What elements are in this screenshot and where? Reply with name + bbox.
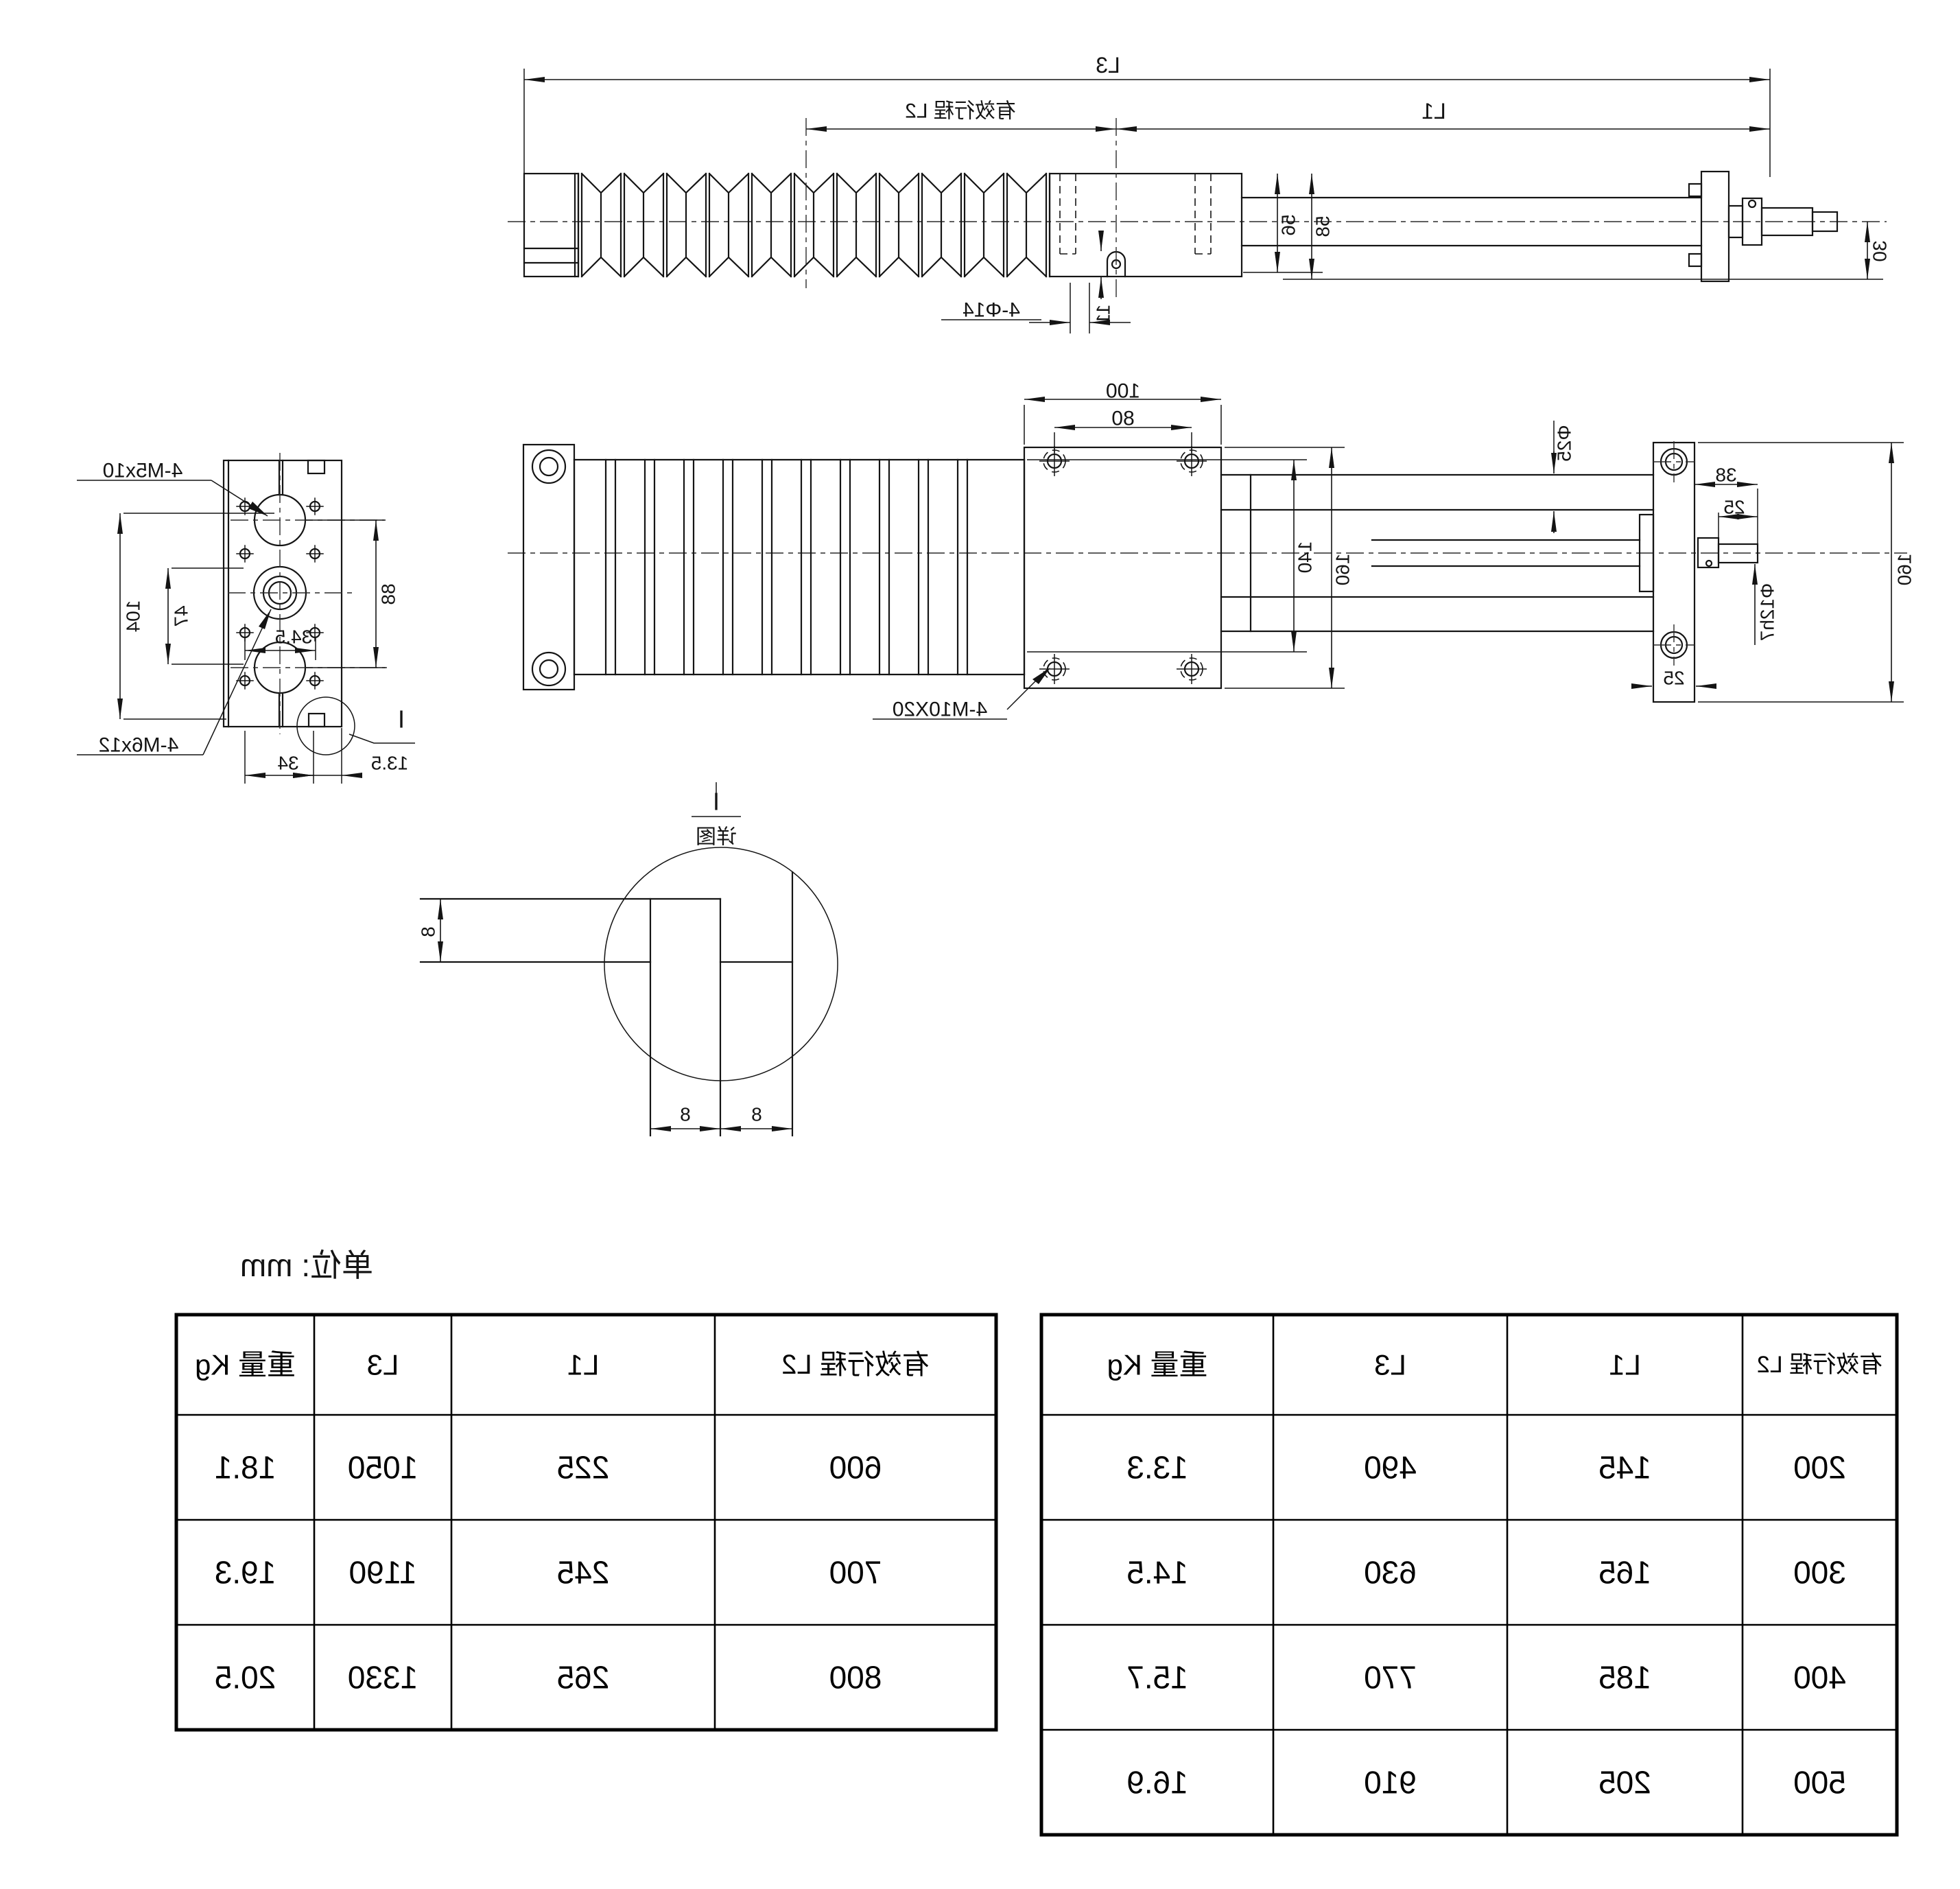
table-cell: 185 [1598, 1660, 1651, 1696]
dim-58: 58 [1312, 215, 1334, 237]
table-cell: 225 [557, 1450, 610, 1486]
keyway-top [308, 460, 324, 473]
dim-160-left: 160 [1332, 554, 1354, 586]
dim-34: 34 [277, 753, 298, 774]
table-cell: 200 [1793, 1450, 1846, 1486]
detail-title-I: I [713, 788, 720, 816]
bellows-end-cap [524, 174, 578, 277]
detail-view-I [421, 782, 838, 1136]
dim-4xM10X20: 4-M10X20 [893, 699, 987, 721]
middle-plan-view [508, 399, 1907, 719]
table-header: L1 [567, 1349, 600, 1381]
dim-4xM6x12: 4-M6x12 [99, 734, 179, 757]
table-cell: 19.3 [215, 1555, 276, 1591]
table-cell: 1190 [349, 1555, 417, 1591]
table-header: 有效行程 L2 [1757, 1352, 1882, 1378]
dim-34p5: 34.5 [275, 626, 313, 648]
dim-25-bottom: 25 [1663, 668, 1684, 689]
table-cell: 400 [1793, 1660, 1846, 1696]
mounting-bolt-holes [1039, 446, 1207, 684]
table-header: L1 [1609, 1349, 1641, 1381]
table-cell: 630 [1364, 1555, 1417, 1591]
dim-11: 11 [1093, 304, 1114, 324]
dim-38: 38 [1715, 465, 1736, 486]
bellows [578, 174, 1050, 277]
table-cell: 600 [829, 1450, 882, 1486]
table-cell: 500 [1793, 1765, 1846, 1800]
table-header: 重量 Kg [195, 1349, 296, 1381]
detail-ref-I: I [398, 705, 405, 734]
table-cell: 800 [829, 1660, 882, 1696]
dim-56: 56 [1278, 214, 1299, 235]
table-cell: 205 [1598, 1765, 1651, 1800]
drawing-sheet: L3有效行程 L2L14-Φ14115658304-M5x10104474-M6… [0, 0, 1960, 1889]
table-cell: 18.1 [215, 1450, 276, 1486]
table-cell: 16.9 [1126, 1765, 1188, 1800]
dim-30: 30 [1869, 240, 1891, 261]
table-header: L3 [1374, 1349, 1406, 1381]
table-cell: 165 [1598, 1555, 1651, 1591]
dim-13p5: 13.5 [371, 753, 409, 774]
table-cell: 1050 [348, 1450, 418, 1486]
dim-88: 88 [378, 583, 399, 605]
table-cell: 1330 [348, 1660, 418, 1696]
table-header: 重量 Kg [1107, 1349, 1207, 1381]
dim-D25: Φ25 [1554, 425, 1575, 461]
dim-L1: L1 [1421, 99, 1446, 124]
engineering-drawing: L3有效行程 L2L14-Φ14115658304-M5x10104474-M6… [0, 0, 1960, 1889]
dim-D12h7: Φ12h7 [1757, 583, 1778, 642]
ribbed-housing [574, 460, 1024, 674]
spec-table-right: 重量 Kg13.314.515.716.9L3490630770910L1145… [1041, 1315, 1897, 1835]
table-cell: 490 [1364, 1450, 1417, 1486]
dim-100: 100 [1106, 380, 1140, 403]
dim-4xM5x10: 4-M5x10 [103, 460, 183, 482]
dim-8-vert: 8 [418, 926, 439, 937]
table-cell: 910 [1364, 1765, 1417, 1800]
table-header: 有效行程 L2 [781, 1350, 930, 1380]
table-cell: 265 [557, 1660, 610, 1696]
table-cell: 145 [1598, 1450, 1651, 1486]
slider-body [1050, 174, 1242, 277]
end-plate [224, 460, 342, 727]
tables-layer: 重量 Kg18.119.320.5L3105011901330L12252452… [176, 1315, 1897, 1835]
table-cell: 300 [1793, 1555, 1846, 1591]
dim-L3: L3 [1096, 53, 1120, 78]
table-cell: 15.7 [1126, 1660, 1188, 1696]
dim-47: 47 [171, 605, 192, 626]
dim-4xD14: 4-Φ14 [963, 299, 1020, 322]
dim-140: 140 [1295, 541, 1316, 574]
table-header: L3 [367, 1349, 399, 1381]
table-cell: 770 [1364, 1660, 1417, 1696]
rod-end-bracket [1701, 172, 1729, 281]
dim-160-right: 160 [1894, 554, 1915, 586]
table-cell: 13.3 [1126, 1450, 1188, 1486]
unit-label: 单位: mm [240, 1247, 373, 1283]
dim-stroke-L2: 有效行程 L2 [905, 100, 1016, 123]
top-side-view [508, 69, 1887, 333]
table-cell: 20.5 [215, 1660, 276, 1696]
dim-8-a: 8 [680, 1104, 691, 1125]
keyway-bottom [309, 714, 324, 727]
dim-104: 104 [123, 600, 144, 633]
detail-title: 详图 [696, 826, 737, 849]
table-cell: 14.5 [1126, 1555, 1188, 1591]
table-cell: 245 [557, 1555, 610, 1591]
table-cell: 700 [829, 1555, 882, 1591]
spec-table-left: 重量 Kg18.119.320.5L3105011901330L12252452… [176, 1315, 996, 1730]
dim-25-top: 25 [1723, 497, 1745, 518]
dim-8-b: 8 [751, 1104, 762, 1125]
dim-80: 80 [1111, 408, 1134, 430]
